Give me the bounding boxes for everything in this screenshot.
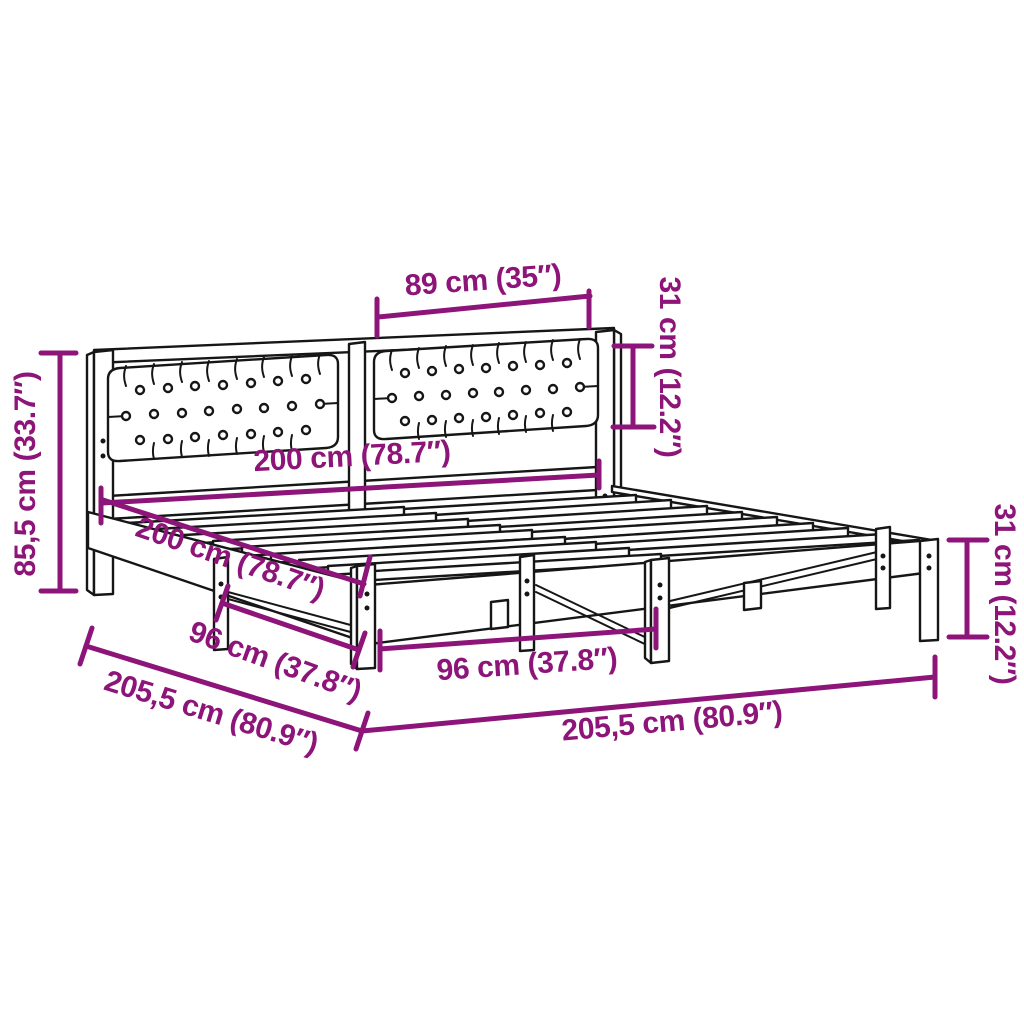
- dim-85-line: [41, 353, 76, 591]
- dimension-label-base-height-right: 31 cm (12.2″): [987, 504, 1021, 685]
- dimension-label-headboard-cushion-height: 31 cm (12.2″): [652, 277, 686, 458]
- dim-31-right-line: [949, 540, 987, 637]
- dimension-label-total-height: 85,5 cm (33.7″): [9, 371, 43, 576]
- diagram-canvas: 89 cm (35″) 31 cm (12.2″) 85,5 cm (33.7″…: [0, 0, 1024, 1024]
- headboard-cushion-right: [374, 339, 598, 439]
- bed-line-art: [0, 0, 1024, 1024]
